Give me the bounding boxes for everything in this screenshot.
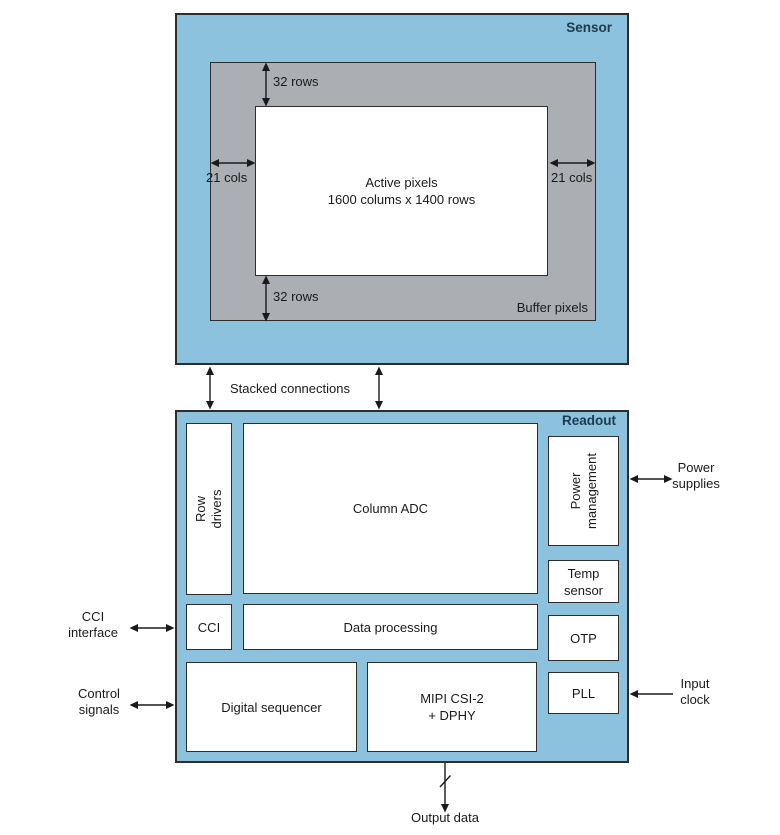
dim-bottom-label: 32 rows (273, 289, 319, 305)
column-adc-box: Column ADC (243, 423, 538, 594)
data-processing-label: Data processing (344, 619, 438, 636)
stacked-arrow-left-icon (203, 366, 217, 410)
dim-right-arrow-icon (549, 156, 596, 170)
column-adc-label: Column ADC (353, 500, 428, 517)
dim-bottom-arrow-icon (259, 275, 273, 322)
control-signals-arrow-icon (129, 698, 175, 712)
dim-top-label: 32 rows (273, 74, 319, 90)
dim-left-label: 21 cols (206, 170, 247, 186)
cci-interface-label: CCI interface (55, 609, 131, 641)
stacked-connections-label: Stacked connections (230, 381, 350, 397)
digital-sequencer-box: Digital sequencer (186, 662, 357, 752)
sensor-title: Sensor (566, 20, 612, 35)
buffer-pixels-label: Buffer pixels (470, 300, 588, 316)
cci-interface-arrow-icon (129, 621, 175, 635)
stacked-arrow-right-icon (372, 366, 386, 410)
otp-box: OTP (548, 615, 619, 661)
pll-label: PLL (572, 685, 595, 702)
cci-label: CCI (198, 619, 220, 636)
input-clock-label: Input clock (657, 676, 733, 708)
row-drivers-box: Row drivers (186, 423, 232, 595)
power-management-box: Power management (548, 436, 619, 546)
temp-sensor-box: Temp sensor (548, 560, 619, 603)
dim-top-arrow-icon (259, 62, 273, 107)
digital-sequencer-label: Digital sequencer (221, 699, 321, 716)
power-management-label: Power management (568, 453, 600, 529)
output-data-arrow-icon (436, 763, 454, 813)
power-supplies-label: Power supplies (657, 460, 735, 492)
active-pixels-label: Active pixels 1600 colums x 1400 rows (328, 174, 475, 208)
output-data-label: Output data (393, 810, 497, 826)
cci-box: CCI (186, 604, 232, 650)
data-processing-box: Data processing (243, 604, 538, 650)
mipi-box: MIPI CSI-2 + DPHY (367, 662, 537, 752)
mipi-label: MIPI CSI-2 + DPHY (420, 690, 484, 724)
temp-sensor-label: Temp sensor (564, 565, 603, 599)
otp-label: OTP (570, 630, 597, 647)
active-pixels-box: Active pixels 1600 colums x 1400 rows (255, 106, 548, 276)
control-signals-label: Control signals (59, 686, 139, 718)
diagram-canvas: Sensor Buffer pixels Active pixels 1600 … (0, 0, 780, 835)
dim-left-arrow-icon (210, 156, 256, 170)
readout-title: Readout (562, 413, 616, 428)
pll-box: PLL (548, 672, 619, 714)
dim-right-label: 21 cols (551, 170, 592, 186)
row-drivers-label: Row drivers (193, 487, 225, 531)
